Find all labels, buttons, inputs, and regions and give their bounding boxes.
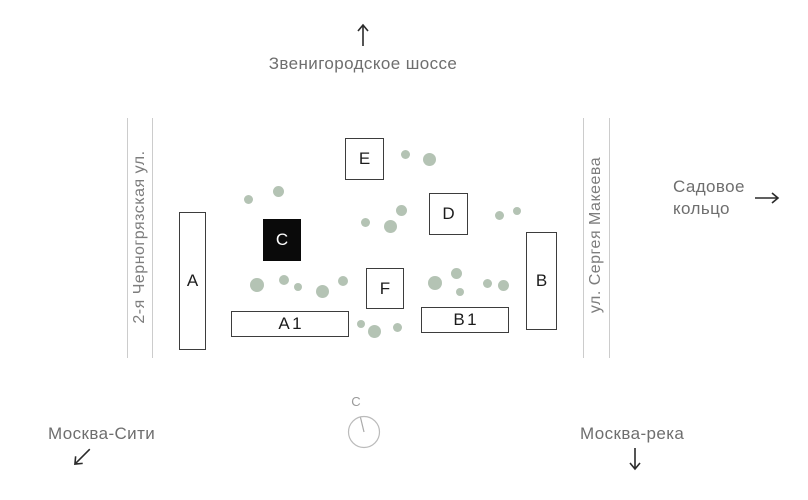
- road-line: [152, 118, 153, 358]
- compass-icon: С: [346, 394, 386, 452]
- building-label: E: [359, 149, 370, 169]
- tree-dot: [423, 153, 436, 166]
- building-b1[interactable]: B1: [421, 307, 509, 333]
- arrow-down-left-icon: [67, 442, 97, 472]
- tree-dot: [368, 325, 381, 338]
- building-e[interactable]: E: [345, 138, 384, 180]
- site-map: Звенигородское шоссе 2-я Черногрязская у…: [0, 0, 808, 500]
- road-line: [609, 118, 610, 358]
- building-label: C: [276, 230, 288, 250]
- building-a1[interactable]: A1: [231, 311, 349, 337]
- tree-dot: [357, 320, 365, 328]
- building-b[interactable]: B: [526, 232, 557, 330]
- sadovoe-label: Садовое кольцо: [673, 176, 745, 220]
- sadovoe-label-line2: кольцо: [673, 198, 745, 220]
- building-label: B1: [451, 310, 479, 330]
- building-label: D: [442, 204, 454, 224]
- compass-dial-icon: [346, 414, 382, 450]
- tree-dot: [393, 323, 402, 332]
- tree-dot: [384, 220, 397, 233]
- building-f[interactable]: F: [366, 268, 404, 309]
- right-street-label: ул. Сергея Макеева: [587, 157, 605, 313]
- arrow-right-icon: [753, 191, 781, 205]
- building-d[interactable]: D: [429, 193, 468, 235]
- tree-dot: [401, 150, 410, 159]
- tree-dot: [396, 205, 407, 216]
- tree-dot: [513, 207, 521, 215]
- tree-dot: [316, 285, 329, 298]
- building-c[interactable]: C: [263, 219, 301, 261]
- tree-dot: [498, 280, 509, 291]
- building-a[interactable]: A: [179, 212, 206, 350]
- tree-dot: [495, 211, 504, 220]
- road-line: [583, 118, 584, 358]
- arrow-down-icon: [627, 446, 643, 472]
- tree-dot: [451, 268, 462, 279]
- moscow-city-label: Москва-Сити: [48, 424, 155, 444]
- arrow-up-icon: [355, 22, 371, 48]
- tree-dot: [483, 279, 492, 288]
- left-street-label: 2-я Черногрязская ул.: [131, 150, 149, 323]
- top-road-label: Звенигородское шоссе: [258, 54, 468, 74]
- sadovoe-label-line1: Садовое: [673, 176, 745, 198]
- tree-dot: [244, 195, 253, 204]
- tree-dot: [279, 275, 289, 285]
- tree-dot: [428, 276, 442, 290]
- tree-dot: [338, 276, 348, 286]
- tree-dot: [273, 186, 284, 197]
- building-label: A1: [276, 314, 304, 334]
- tree-dot: [456, 288, 464, 296]
- moscow-river-label: Москва-река: [580, 424, 684, 444]
- tree-dot: [294, 283, 302, 291]
- tree-dot: [361, 218, 370, 227]
- building-label: B: [536, 271, 547, 291]
- building-label: F: [380, 279, 390, 299]
- building-label: A: [187, 271, 198, 291]
- tree-dot: [250, 278, 264, 292]
- compass-north-label: С: [348, 394, 364, 409]
- road-line: [127, 118, 128, 358]
